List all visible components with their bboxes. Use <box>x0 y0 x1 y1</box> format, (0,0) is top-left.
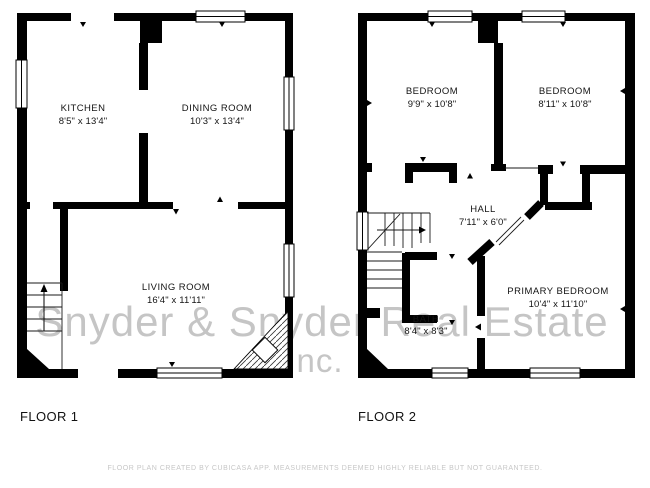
room-bedroom-right: BEDROOM 8'11" x 10'8" <box>538 86 591 110</box>
room-kitchen-label: KITCHEN <box>61 103 106 114</box>
hall-diagonal-doorway <box>470 168 541 262</box>
window <box>284 244 294 297</box>
room-hall-label: HALL <box>470 204 496 215</box>
window <box>522 11 565 22</box>
room-bedroom-left: BEDROOM 9'9" x 10'8" <box>406 86 458 110</box>
floor2-walls <box>358 13 635 378</box>
room-bath-dims: 8'4" x 8'3" <box>404 326 447 337</box>
room-bedroom-right-dims: 8'11" x 10'8" <box>538 99 591 110</box>
room-living-dims: 16'4" x 11'11" <box>147 295 205 306</box>
window <box>428 11 472 22</box>
stair-up-arrow-icon <box>419 227 426 234</box>
room-hall: HALL 7'11" x 6'0" <box>459 204 507 228</box>
room-bath-label: BATH <box>413 314 439 325</box>
room-dining-label: DINING ROOM <box>182 103 252 114</box>
fireplace-icon <box>234 311 288 369</box>
room-bedroom-right-label: BEDROOM <box>539 86 591 97</box>
floor1-walls <box>17 13 293 378</box>
floor2-title: FLOOR 2 <box>358 409 416 424</box>
window <box>357 212 368 250</box>
room-living: LIVING ROOM 16'4" x 11'11" <box>142 282 210 306</box>
window <box>530 368 580 378</box>
floor1-plan: KITCHEN 8'5" x 13'4" DINING ROOM 10'3" x… <box>16 11 294 424</box>
floor2-staircase <box>367 213 430 288</box>
window <box>196 11 245 22</box>
room-bedroom-left-label: BEDROOM <box>406 86 458 97</box>
room-bedroom-left-dims: 9'9" x 10'8" <box>408 99 457 110</box>
floor1-title: FLOOR 1 <box>20 409 78 424</box>
room-dining-dims: 10'3" x 13'4" <box>190 116 244 127</box>
floorplan-image: Snyder & Snyder Real Estate Inc. <box>0 0 650 488</box>
room-living-label: LIVING ROOM <box>142 282 210 293</box>
window <box>157 368 222 378</box>
stair-up-arrow-icon <box>41 284 48 292</box>
room-primary-bedroom-label: PRIMARY BEDROOM <box>507 286 608 297</box>
window <box>432 368 468 378</box>
room-kitchen: KITCHEN 8'5" x 13'4" <box>59 103 108 127</box>
window <box>284 77 294 130</box>
room-kitchen-dims: 8'5" x 13'4" <box>59 116 108 127</box>
room-dining: DINING ROOM 10'3" x 13'4" <box>182 103 252 127</box>
floor2-plan: BEDROOM 9'9" x 10'8" BEDROOM 8'11" x 10'… <box>357 11 635 424</box>
room-hall-dims: 7'11" x 6'0" <box>459 217 507 228</box>
floorplan-drawing: KITCHEN 8'5" x 13'4" DINING ROOM 10'3" x… <box>0 0 650 488</box>
window <box>16 60 27 108</box>
room-primary-bedroom: PRIMARY BEDROOM 10'4" x 11'10" <box>507 286 608 310</box>
room-primary-bedroom-dims: 10'4" x 11'10" <box>529 299 588 310</box>
floor1-door-markers <box>80 22 225 367</box>
floor1-windows <box>16 11 294 378</box>
footer-disclaimer: FLOOR PLAN CREATED BY CUBICASA APP. MEAS… <box>0 465 650 472</box>
